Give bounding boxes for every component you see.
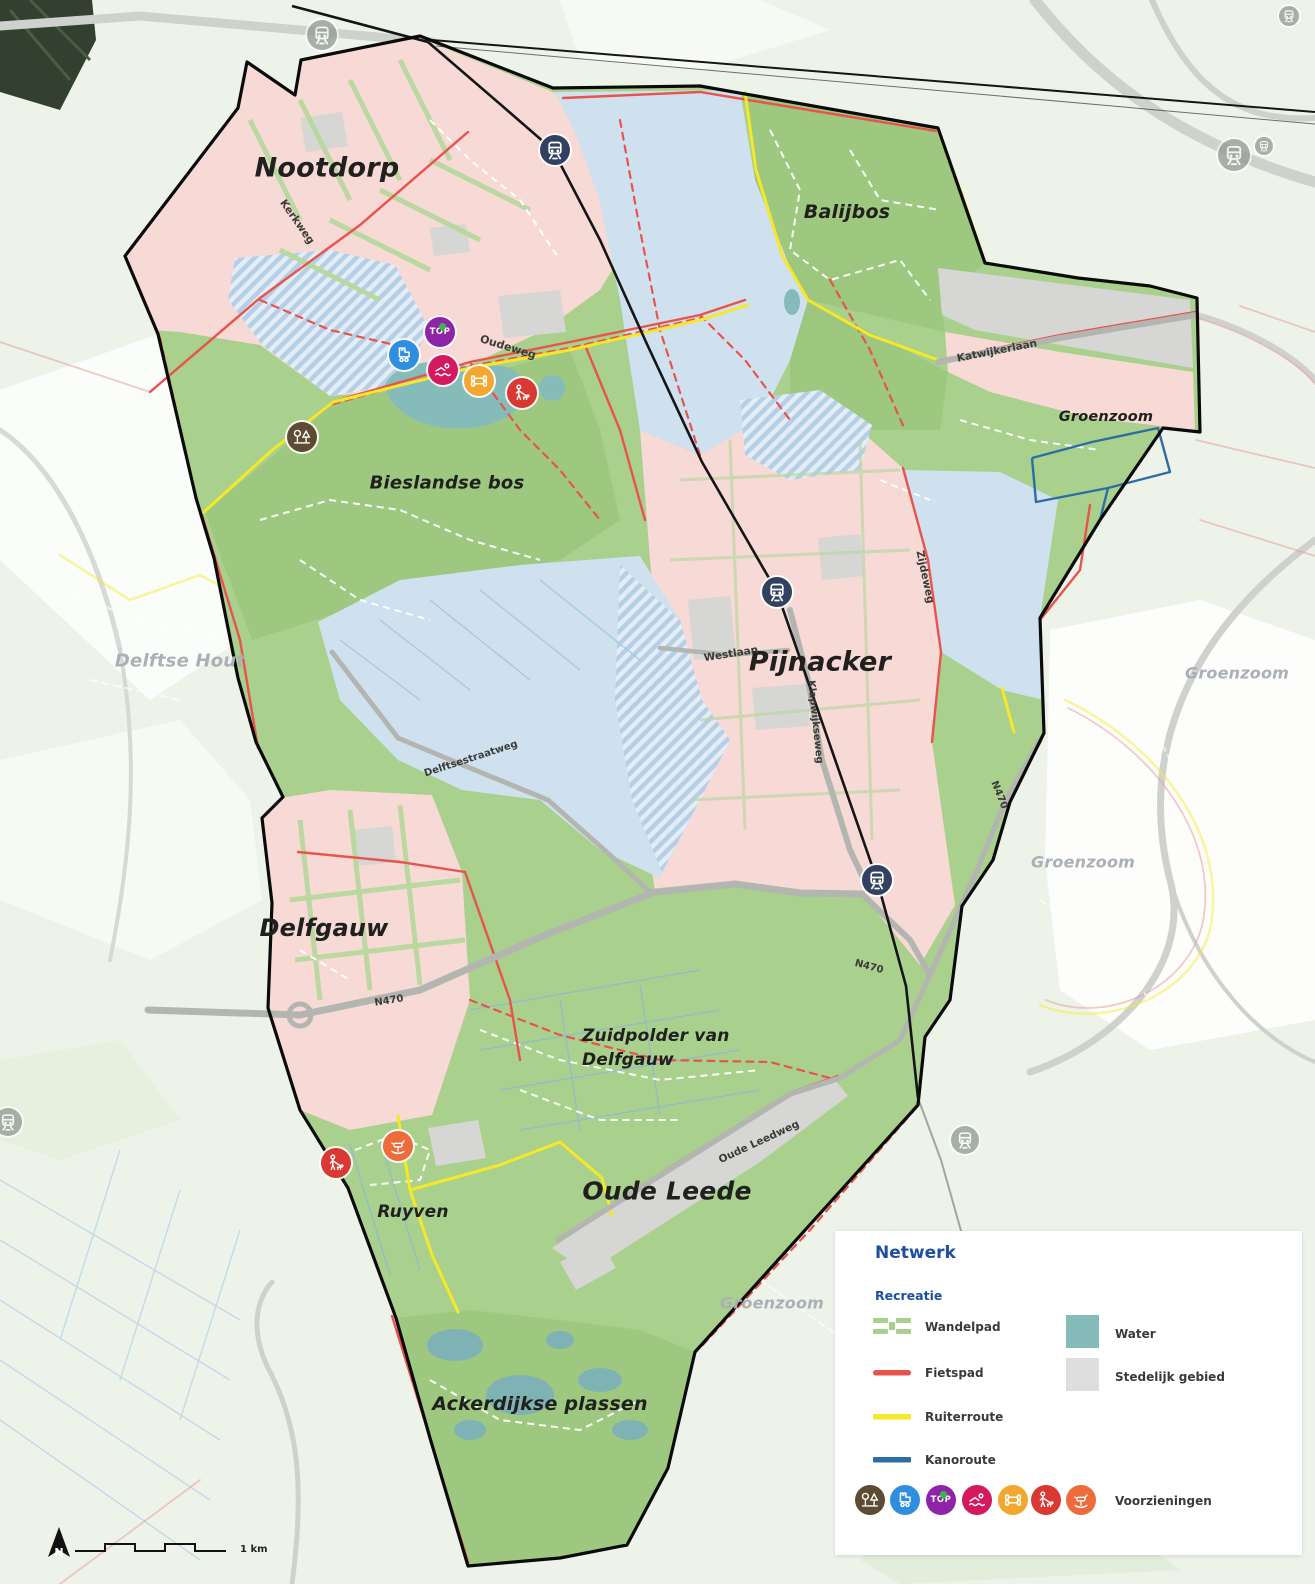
legend-label-kanoroute: Kanoroute: [925, 1453, 996, 1467]
playground-icon: [383, 1131, 413, 1161]
place-label-delftse-hout: Delftse Hout: [115, 651, 245, 672]
scale-bar: [73, 1538, 233, 1556]
place-label-groenzoom-zuid: Groenzoom: [720, 1294, 824, 1313]
water-swatch: [1066, 1315, 1099, 1348]
ruiterroute-symbol: [873, 1413, 911, 1421]
place-label-groenzoom-noord: Groenzoom: [1059, 409, 1153, 425]
map-page: TOP Nootdorp Balijbos Groenzoom Biesland…: [0, 0, 1315, 1584]
swim-icon: [428, 355, 458, 385]
station-icon-faded: [1255, 137, 1273, 155]
wandelpad-symbol: [873, 1317, 911, 1335]
station-icon: [862, 865, 892, 895]
stedelijk-swatch: [1066, 1358, 1099, 1391]
swim-icon: [962, 1485, 992, 1515]
legend-panel: Netwerk Recreatie Wandelpad Fietspad Rui…: [835, 1231, 1302, 1555]
station-icon-faded: [1218, 139, 1250, 171]
dog-walking-icon: [321, 1148, 351, 1178]
station-icon-faded: [0, 1108, 22, 1136]
kanoroute-symbol: [873, 1456, 911, 1464]
dog-walking-icon: [507, 378, 537, 408]
station-icon-faded: [1279, 6, 1299, 26]
fitness-icon: [464, 366, 494, 396]
station-icon-faded: [307, 20, 337, 50]
station-icon: [762, 577, 792, 607]
legend-label-fietspad: Fietspad: [925, 1366, 984, 1380]
top-icon: TOP: [425, 317, 455, 347]
legend-label-water: Water: [1115, 1327, 1156, 1341]
place-label-groenzoom-oost: Groenzoom: [1185, 664, 1289, 683]
playground-icon: [1066, 1485, 1096, 1515]
place-label-balijbos: Balijbos: [804, 201, 890, 223]
legend-section-recreatie: Recreatie: [875, 1288, 942, 1303]
station-icon-faded: [951, 1126, 979, 1154]
fietspad-symbol: [873, 1369, 911, 1377]
park-icon: [855, 1485, 885, 1515]
place-label-zuidpolder-line1: Zuidpolder van: [582, 1026, 730, 1046]
station-icon: [540, 135, 570, 165]
place-label-groenzoom-midden: Groenzoom: [1031, 853, 1135, 872]
legend-label-ruiterroute: Ruiterroute: [925, 1410, 1003, 1424]
skate-icon: [890, 1485, 920, 1515]
legend-title: Netwerk: [875, 1243, 956, 1263]
scale-bar-label: 1 km: [240, 1544, 268, 1555]
legend-label-voorzieningen: Voorzieningen: [1115, 1494, 1212, 1508]
dog-walking-icon: [1031, 1485, 1061, 1515]
place-label-pijnacker: Pijnacker: [749, 647, 891, 678]
place-label-ruyven: Ruyven: [377, 1202, 448, 1222]
place-label-zuidpolder-line2: Delfgauw: [582, 1050, 674, 1070]
top-icon: TOP: [926, 1485, 956, 1515]
place-label-oude-leede: Oude Leede: [582, 1177, 751, 1206]
place-label-nootdorp: Nootdorp: [255, 153, 400, 184]
north-arrow-label: N: [54, 1546, 63, 1559]
legend-label-stedelijk-gebied: Stedelijk gebied: [1115, 1370, 1225, 1384]
skate-icon: [389, 340, 419, 370]
park-icon: [287, 422, 317, 452]
fitness-icon: [998, 1485, 1028, 1515]
north-arrow: N: [46, 1526, 72, 1560]
place-label-ackerdijkse-plassen: Ackerdijkse plassen: [432, 1393, 647, 1415]
place-label-delfgauw: Delfgauw: [259, 914, 388, 942]
place-label-bieslandse-bos: Bieslandse bos: [370, 473, 525, 494]
legend-label-wandelpad: Wandelpad: [925, 1320, 1001, 1334]
